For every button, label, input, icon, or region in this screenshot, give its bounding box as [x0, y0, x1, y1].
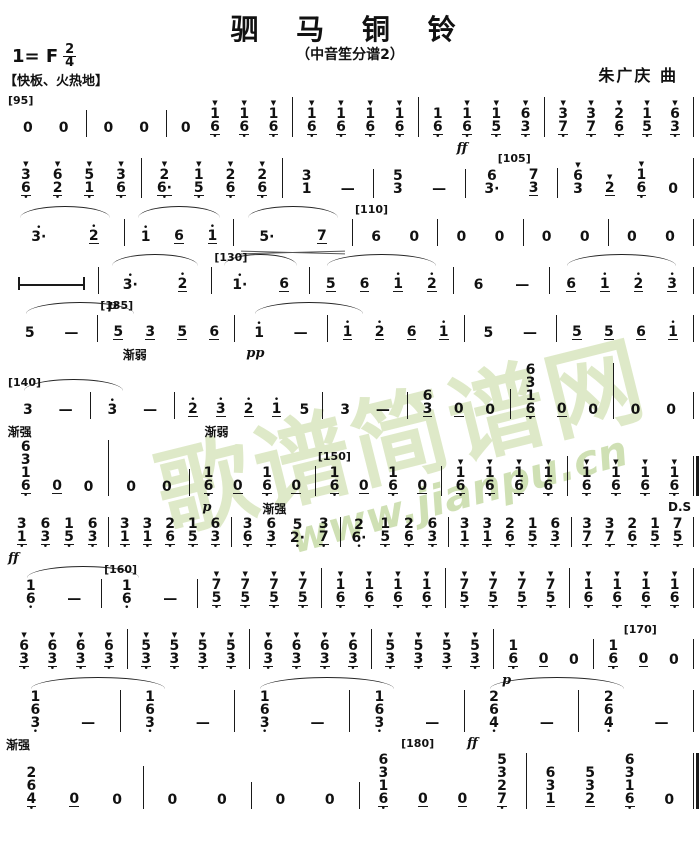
note-token: ▼16•	[364, 569, 374, 606]
note-token: 5	[25, 327, 35, 340]
note-token: ▼16•	[485, 457, 495, 494]
low-octave-dot: •	[487, 494, 492, 499]
note-token: •1	[439, 321, 449, 340]
low-octave-dot: •	[262, 730, 267, 735]
note-token: •1	[600, 273, 610, 292]
measure: 163•—	[350, 690, 465, 732]
note-number: 3·	[484, 183, 499, 196]
measure: [110]60	[353, 219, 438, 246]
note-token: 31•	[460, 518, 470, 545]
note-number: 0	[668, 183, 678, 196]
dynamic-marking: 渐弱	[204, 423, 228, 440]
note-token: •3	[107, 399, 117, 417]
measure: D.S▼16•▼16•▼16•▼16•	[568, 456, 694, 496]
note-token: ▼16•	[669, 457, 679, 494]
note-number: 3	[529, 182, 539, 196]
measure: ff31•63•15•63•	[6, 517, 109, 547]
low-octave-dot: •	[23, 196, 28, 201]
note-number: —	[143, 404, 157, 417]
measure: 16•—	[6, 579, 102, 608]
note-number: —	[67, 593, 81, 606]
low-octave-dot: •	[122, 545, 127, 550]
low-octave-dot: •	[28, 606, 33, 611]
note-token: 5	[326, 278, 336, 292]
low-octave-dot: •	[78, 667, 83, 672]
measure: 556•1	[557, 315, 694, 342]
note-number: 0	[665, 231, 675, 244]
measure: 00	[87, 110, 168, 137]
note-token: 6	[360, 278, 370, 292]
measure: 37•37•26•15•75•	[572, 517, 694, 547]
note-token: 0	[275, 794, 285, 807]
note-number: 2	[244, 403, 254, 417]
note-token: 532	[585, 767, 595, 807]
note-token: ▼53•	[226, 630, 236, 667]
low-octave-dot: •	[106, 667, 111, 672]
dynamic-marking: D.S	[668, 500, 691, 514]
note-number: 0	[417, 480, 427, 494]
note-number: 3	[393, 183, 403, 196]
note-token: •3·	[123, 274, 138, 292]
low-octave-dot: •	[206, 494, 211, 499]
measure: 5·7	[234, 219, 353, 246]
note-token: •2	[244, 398, 254, 417]
measure: ▼26·•▼15•▼26•▼26•	[142, 158, 283, 198]
note-number: —	[540, 717, 554, 730]
note-token: ▼16•	[269, 98, 279, 135]
page-subtitle: （中音笙分谱2）	[0, 44, 700, 64]
note-number: 1	[302, 183, 312, 196]
low-octave-dot: •	[435, 135, 440, 140]
measure: •1•26•1	[328, 315, 465, 342]
note-number: —	[163, 593, 177, 606]
note-token: 6	[474, 279, 484, 292]
measure: pp•1—	[235, 315, 327, 342]
note-number: 0	[664, 794, 674, 807]
note-number: 1	[208, 230, 218, 244]
note-token: 5	[572, 326, 582, 340]
note-token: 163•	[374, 691, 384, 730]
note-token: 0	[631, 404, 641, 417]
note-number: 0	[112, 794, 122, 807]
note-token: 26•	[627, 518, 637, 545]
low-octave-dot: •	[395, 606, 400, 611]
note-number: 3	[216, 403, 226, 417]
rehearsal-mark: [130]	[214, 251, 247, 264]
note-token: 7	[317, 230, 327, 244]
note-token: ▼75•	[269, 569, 279, 606]
note-token: 163•	[145, 691, 155, 730]
note-token: —	[432, 183, 446, 196]
note-number: 6	[371, 231, 381, 244]
measure: 31—	[283, 169, 374, 198]
low-octave-dot: •	[553, 545, 558, 550]
note-number: 1	[600, 278, 610, 292]
low-octave-dot: •	[144, 667, 149, 672]
note-token: 0	[69, 793, 79, 807]
note-number: —	[341, 183, 355, 196]
note-token: 0	[456, 231, 466, 244]
note-token: 0	[359, 480, 369, 494]
tempo-marking: 【快板、火热地】	[4, 70, 108, 89]
note-token: 26•	[505, 518, 515, 545]
note-token: 0	[668, 183, 678, 196]
note-token: ▼63•	[104, 630, 114, 667]
low-octave-dot: •	[494, 135, 499, 140]
note-token: 5	[604, 326, 614, 340]
low-octave-dot: •	[381, 807, 386, 812]
low-octave-dot: •	[464, 135, 469, 140]
note-token: 5	[484, 327, 494, 340]
low-octave-dot: •	[613, 494, 618, 499]
note-number: 1	[439, 326, 449, 340]
note-token: ▼53•	[141, 630, 151, 667]
note-number: 0	[588, 404, 598, 417]
note-number: 0	[139, 122, 149, 135]
dynamic-marking: ff	[467, 736, 478, 751]
note-token: 0	[669, 654, 679, 667]
low-octave-dot: •	[530, 545, 535, 550]
note-token: —	[196, 717, 210, 730]
system: 16•—[160]16•—▼75•▼75•▼75•▼75•▼16•▼16•▼16…	[6, 568, 694, 608]
note-token: ▼26·•	[157, 159, 172, 196]
note-token: 0	[84, 481, 94, 494]
low-octave-dot: •	[406, 545, 411, 550]
measure: 00	[252, 782, 360, 809]
low-octave-dot: •	[338, 135, 343, 140]
measure: ▼16•▼16•▼16•▼16•	[442, 456, 568, 496]
note-token: ▼53•	[442, 630, 452, 667]
meter-denominator: 4	[63, 56, 76, 69]
low-octave-dot: •	[145, 545, 150, 550]
note-token: ▼63•	[292, 630, 302, 667]
note-token: 0	[409, 231, 419, 244]
note-number: 5	[572, 326, 582, 340]
note-number: 0	[84, 481, 94, 494]
measure: p渐强16•016•0	[190, 466, 316, 496]
low-octave-dot: •	[367, 606, 372, 611]
measure: ▼75•▼75•▼75•▼75•	[198, 568, 322, 608]
note-number: 5	[25, 327, 35, 340]
note-token: —	[163, 593, 177, 606]
note-number: 0	[458, 793, 468, 807]
note-token: ▼16•	[336, 569, 346, 606]
low-octave-dot: •	[118, 196, 123, 201]
note-token: 3	[340, 404, 350, 417]
low-octave-dot: •	[652, 545, 657, 550]
note-number: —	[523, 327, 537, 340]
note-token: 6316•	[526, 364, 536, 417]
low-octave-dot: •	[368, 135, 373, 140]
measure: •3—	[91, 392, 176, 419]
low-octave-dot: •	[212, 135, 217, 140]
measure: ▼16•▼16•▼16•▼16•	[322, 568, 446, 608]
measure: [105]63·73	[466, 168, 558, 198]
note-number: —	[196, 717, 210, 730]
note-token: 5	[299, 404, 309, 417]
note-token: 75•	[673, 518, 683, 545]
note-token: ▼16•	[395, 98, 405, 135]
low-octave-dot: •	[322, 667, 327, 672]
note-token: 264•	[27, 767, 37, 807]
low-octave-dot: •	[588, 135, 593, 140]
measure: 0▼16•▼16•▼16•	[167, 97, 293, 137]
low-octave-dot: •	[507, 545, 512, 550]
low-octave-dot: •	[66, 545, 71, 550]
note-token: ▼16•	[612, 569, 622, 606]
measure	[6, 267, 99, 294]
note-token: 63•	[88, 518, 98, 545]
measure: 6300	[408, 389, 511, 419]
note-token: 16•	[262, 467, 272, 494]
measure: [150]16•016•0	[316, 466, 442, 496]
note-token: 0	[485, 404, 495, 417]
low-octave-dot: •	[43, 545, 48, 550]
note-number: 0	[580, 231, 590, 244]
measure: 26·•15•26•63•	[341, 517, 450, 547]
dynamic-marking: p	[502, 673, 511, 688]
note-number: 3	[145, 326, 155, 340]
note-number: 2	[605, 182, 615, 196]
note-number: 5	[484, 327, 494, 340]
note-token: 0	[666, 404, 676, 417]
note-token: 26•	[165, 518, 175, 545]
low-octave-dot: •	[672, 606, 677, 611]
low-octave-dot: •	[616, 135, 621, 140]
measure: ▼63▼2▼16•0	[558, 158, 694, 198]
note-token: 16•	[122, 580, 132, 606]
low-octave-dot: •	[260, 196, 265, 201]
note-number: 6	[636, 326, 646, 340]
note-number: 0	[52, 480, 62, 494]
note-token: 0	[639, 653, 649, 667]
note-token: ▼16•	[670, 569, 680, 606]
note-number: 6	[360, 278, 370, 292]
note-number: 5	[299, 404, 309, 417]
measure: ▼53•▼53•▼53•▼53•	[372, 629, 494, 669]
low-octave-dot: •	[424, 606, 429, 611]
note-number: 3·	[123, 279, 138, 292]
note-token: ▼36•	[21, 159, 31, 196]
low-octave-dot: •	[228, 667, 233, 672]
note-number: 0	[485, 404, 495, 417]
note-number: 6	[474, 279, 484, 292]
note-number: 5	[604, 326, 614, 340]
measure: ff16•▼16•▼15•▼63•	[419, 97, 545, 137]
note-number: 0	[454, 403, 464, 417]
note-number: 0	[162, 481, 172, 494]
low-octave-dot: •	[332, 494, 337, 499]
note-number: 2	[375, 326, 385, 340]
low-octave-dot: •	[675, 545, 680, 550]
measure: 6316•00	[6, 440, 109, 496]
low-octave-dot: •	[21, 667, 26, 672]
low-octave-dot: •	[561, 135, 566, 140]
measure: [135]渐弱5356	[98, 315, 235, 342]
low-octave-dot: •	[162, 196, 167, 201]
measure: 6315326316•0	[527, 753, 694, 809]
low-octave-dot: •	[33, 730, 38, 735]
low-octave-dot: •	[390, 494, 395, 499]
note-number: 0	[557, 403, 567, 417]
dynamic-marking: 渐强	[8, 423, 32, 440]
note-token: •1	[208, 225, 218, 244]
note-token: 5	[177, 326, 187, 340]
low-octave-dot: •	[416, 667, 421, 672]
measure: 5—	[465, 315, 557, 342]
note-token: 0	[417, 480, 427, 494]
key-signature: 1= F 2 4	[12, 44, 76, 69]
note-token: 63•	[41, 518, 51, 545]
dynamic-marking: 渐强	[6, 736, 30, 753]
low-octave-dot: •	[523, 135, 528, 140]
note-token: 0	[665, 231, 675, 244]
low-octave-dot: •	[462, 606, 467, 611]
note-token: ▼63•	[670, 98, 680, 135]
note-token: ▼51•	[84, 159, 94, 196]
note-token: 63•	[428, 518, 438, 545]
measure: 36•63•52·•37•	[232, 517, 341, 547]
rehearsal-mark: [110]	[355, 203, 388, 216]
multimeasure-rest	[18, 277, 85, 290]
note-token: ▼63•	[320, 630, 330, 667]
note-number: 1	[272, 403, 282, 417]
note-token: —	[515, 279, 529, 292]
low-octave-dot: •	[271, 606, 276, 611]
note-token: 0	[112, 794, 122, 807]
measure: [170]16•00	[594, 639, 694, 669]
note-number: 6	[209, 326, 219, 340]
measure: ▼16•▼16•▼16•▼16•	[570, 568, 694, 608]
note-token: ▼16•	[365, 98, 375, 135]
note-token: —	[341, 183, 355, 196]
note-number: 0	[639, 653, 649, 667]
note-number: 1	[393, 278, 403, 292]
note-token: ▼53•	[470, 630, 480, 667]
note-token: ▼75•	[460, 569, 470, 606]
note-token: ▼16•	[456, 457, 466, 494]
note-token: 163•	[260, 691, 270, 730]
note-number: 6	[407, 326, 417, 340]
note-token: 26·•	[351, 519, 366, 545]
note-token: •1	[272, 398, 282, 417]
note-number: 0	[539, 653, 549, 667]
measure: 6316•00	[511, 363, 614, 419]
rehearsal-mark: [180]	[401, 737, 434, 750]
note-number: 3	[340, 404, 350, 417]
low-octave-dot: •	[214, 606, 219, 611]
measure: 00	[524, 219, 609, 246]
measure: 53—	[374, 169, 465, 198]
note-token: 5	[113, 326, 123, 340]
measure: ▼63•▼63•▼63•▼63•	[6, 629, 128, 669]
note-token: 0	[181, 122, 191, 135]
note-token: ▼16•	[611, 457, 621, 494]
measure: 264•00	[6, 766, 144, 809]
low-octave-dot: •	[29, 807, 34, 812]
note-token: 15•	[650, 518, 660, 545]
rehearsal-mark: [95]	[8, 94, 33, 107]
note-token: ▼53•	[170, 630, 180, 667]
measure: 31•31•26•15•63•	[109, 517, 231, 547]
note-token: 63•	[266, 518, 276, 545]
rehearsal-mark: [150]	[318, 450, 351, 463]
note-token: ▼16•	[422, 569, 432, 606]
note-token: 36•	[243, 518, 253, 545]
low-octave-dot: •	[295, 545, 300, 550]
note-number: 2	[427, 278, 437, 292]
key-label: 1= F	[12, 46, 58, 67]
note-number: 0	[69, 793, 79, 807]
low-octave-dot: •	[611, 667, 616, 672]
note-number: 0	[233, 480, 243, 494]
low-octave-dot: •	[462, 545, 467, 550]
low-octave-dot: •	[309, 135, 314, 140]
dynamic-marking: p	[202, 500, 211, 515]
note-number: 2	[188, 403, 198, 417]
note-token: 63•	[550, 518, 560, 545]
system: ff31•63•15•63•31•31•26•15•63•36•63•52·•3…	[6, 517, 694, 547]
page-title: 驷 马 铜 铃	[0, 8, 700, 48]
note-number: 2	[585, 793, 595, 807]
note-token: ▼63•	[521, 98, 531, 135]
note-token: 6	[279, 278, 289, 292]
measure: ▼53•▼53•▼53•▼53•	[128, 629, 250, 669]
low-octave-dot: •	[499, 807, 504, 812]
note-number: —	[376, 404, 390, 417]
note-number: 1·	[232, 279, 247, 292]
note-token: 16•	[388, 467, 398, 494]
measure: 264•—	[579, 690, 694, 732]
note-token: ▼16•	[514, 457, 524, 494]
low-octave-dot: •	[213, 545, 218, 550]
low-octave-dot: •	[672, 135, 677, 140]
note-token: 31•	[143, 518, 153, 545]
note-token: 15•	[380, 518, 390, 545]
measure: ▼37•▼37•▼26•▼15•▼63•	[545, 97, 694, 137]
measure: 5—	[6, 315, 98, 342]
low-octave-dot: •	[672, 494, 677, 499]
note-number: —	[294, 327, 308, 340]
note-token: 0	[569, 654, 579, 667]
note-number: 0	[495, 231, 505, 244]
note-token: ▼63•	[348, 630, 358, 667]
note-token: •3	[216, 398, 226, 417]
note-token: ▼15•	[642, 98, 652, 135]
note-token: ▼16•	[584, 569, 594, 606]
note-number: —	[425, 717, 439, 730]
low-octave-dot: •	[519, 606, 524, 611]
note-number: —	[311, 717, 325, 730]
note-token: 52·•	[290, 519, 305, 545]
note-token: 31•	[120, 518, 130, 545]
note-token: ▼37•	[558, 98, 568, 135]
note-token: 0	[495, 231, 505, 244]
low-octave-dot: •	[321, 545, 326, 550]
note-token: ▼16•	[462, 98, 472, 135]
note-token: 6	[209, 326, 219, 340]
note-token: —	[67, 593, 81, 606]
rehearsal-mark: [140]	[8, 376, 41, 389]
low-octave-dot: •	[264, 494, 269, 499]
low-octave-dot: •	[485, 545, 490, 550]
low-octave-dot: •	[228, 196, 233, 201]
note-token: ▼16•	[641, 569, 651, 606]
measure: ▼63•▼63•▼63•▼63•	[250, 629, 372, 669]
note-token: —	[655, 717, 669, 730]
system: ▼63•▼63•▼63•▼63•▼53•▼53•▼53•▼53•▼63•▼63•…	[6, 629, 694, 669]
measure: 00	[609, 219, 694, 246]
